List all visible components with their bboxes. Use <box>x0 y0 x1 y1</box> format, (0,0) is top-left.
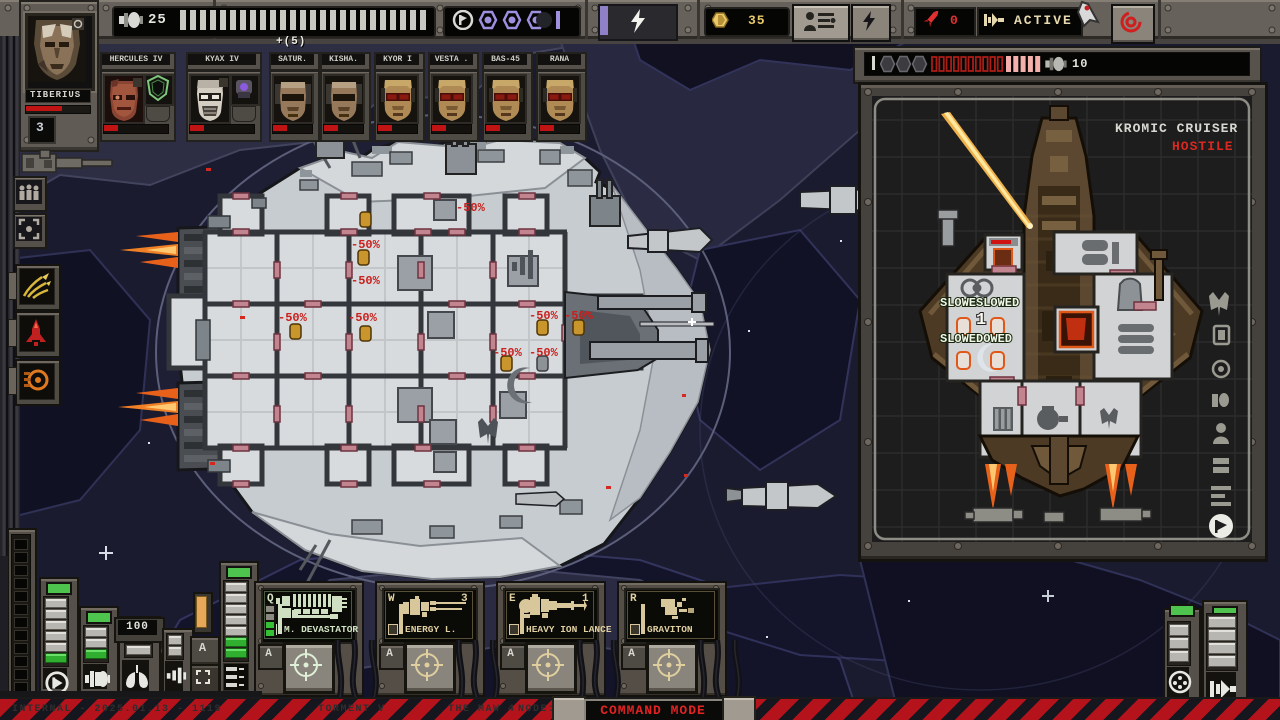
svg-text:-50%: -50% <box>456 201 486 215</box>
svg-text:-50%: -50% <box>493 346 523 360</box>
svg-text:KROMIC CRUISER: KROMIC CRUISER <box>1115 121 1238 136</box>
svg-text:-50%: -50% <box>278 311 308 325</box>
svg-text:SLOWEDOWED: SLOWEDOWED <box>940 332 1012 346</box>
svg-text:-50%: -50% <box>529 309 559 323</box>
svg-text:-50%: -50% <box>351 274 381 288</box>
svg-text:-50%: -50% <box>351 238 381 252</box>
svg-text:SLOWESLOWED: SLOWESLOWED <box>940 296 1019 310</box>
svg-text:HOSTILE: HOSTILE <box>1172 139 1234 154</box>
svg-text:-50%: -50% <box>529 346 559 360</box>
svg-text:-50%: -50% <box>564 309 594 323</box>
svg-text:-50%: -50% <box>348 311 378 325</box>
svg-text:1: 1 <box>976 311 986 330</box>
